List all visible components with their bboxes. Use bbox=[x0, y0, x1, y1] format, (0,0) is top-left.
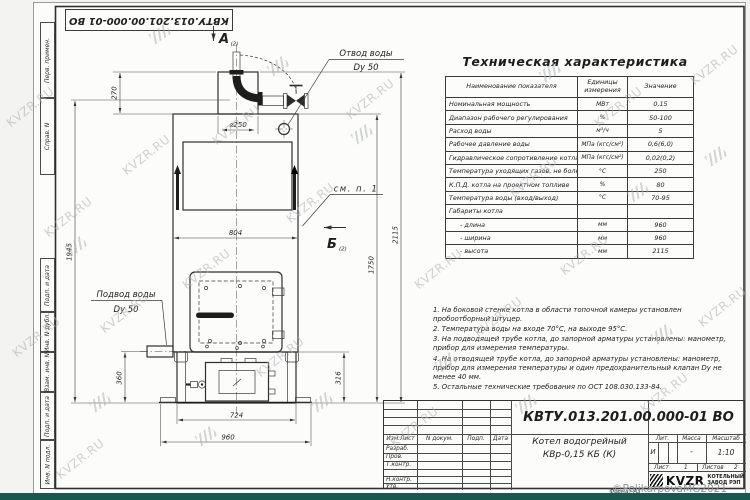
margin-cell-podp-data-1: Подп. и дата bbox=[40, 258, 55, 312]
door-handle bbox=[196, 313, 234, 319]
cell-name: Расход воды bbox=[446, 124, 578, 137]
cell-name: - длина bbox=[446, 218, 578, 231]
mass-value: - bbox=[677, 448, 706, 456]
cell-value: 80 bbox=[628, 178, 694, 191]
cell-value: 0,02(0,2) bbox=[628, 151, 694, 164]
top-stamp: КВТУ.013.201.00.000-01 ВО bbox=[65, 9, 233, 31]
svg-text:(2): (2) bbox=[339, 247, 347, 253]
tech-header-row: Наименование показателя Единицы измерени… bbox=[446, 77, 694, 98]
dim-250: ⌀250 bbox=[229, 121, 247, 129]
cell-name: Гидравлическое сопротивление котла bbox=[446, 151, 578, 164]
table-row: К.П.Д. котла на проектном топливе%80 bbox=[446, 178, 694, 191]
cell-value: 250 bbox=[628, 164, 694, 177]
scale-header: Масштаб bbox=[706, 436, 746, 442]
cell-unit: МПа (кгс/см²) bbox=[578, 151, 628, 164]
cell-name: Габариты котла bbox=[446, 205, 578, 218]
cell-name: - ширина bbox=[446, 231, 578, 244]
elbow bbox=[237, 76, 261, 99]
col-podp: Подп. bbox=[462, 436, 490, 442]
table-row: Диапазон рабочего регулирования%50-100 bbox=[446, 111, 694, 124]
dim-270: 270 bbox=[111, 86, 119, 100]
table-row: Номинальная мощностьМВт0,15 bbox=[446, 98, 694, 111]
cell-unit: °С bbox=[578, 191, 628, 204]
svg-text:Б: Б bbox=[327, 237, 337, 252]
scale-value: 1:10 bbox=[706, 448, 746, 457]
col-name: Наименование показателя bbox=[446, 77, 578, 98]
mass-header: Масса bbox=[677, 436, 706, 442]
svg-text:см. п. 1: см. п. 1 bbox=[334, 185, 379, 195]
cell-value bbox=[628, 205, 694, 218]
dim-2115: 2115 bbox=[392, 226, 400, 244]
cell-unit: °С bbox=[578, 164, 628, 177]
cell-value: 50-100 bbox=[628, 111, 694, 124]
cell-name: Температура уходящих газов, не более bbox=[446, 164, 578, 177]
boiler-body bbox=[147, 52, 312, 403]
furnace-door bbox=[190, 272, 284, 352]
product-name: Котел водогрейный КВр-0,15 КБ (К) bbox=[511, 436, 648, 462]
cell-name: Температура воды (вход/выход) bbox=[446, 191, 578, 204]
cell-value: 5 bbox=[628, 124, 694, 137]
valve bbox=[284, 86, 309, 109]
cell-unit: МВт bbox=[578, 98, 628, 111]
tech-table-title: Техническая характеристика bbox=[450, 54, 700, 69]
upper-panel bbox=[183, 142, 292, 210]
tech-table: Наименование показателя Единицы измерени… bbox=[445, 76, 694, 259]
margin-cell-inv-podl: Инв. N подл. bbox=[40, 440, 55, 489]
cell-unit: % bbox=[578, 178, 628, 191]
margin-cell-inv-dubl: Инв. N дубл. bbox=[40, 312, 55, 352]
note-5: 5. Остальные технические требования по О… bbox=[433, 383, 736, 392]
table-row: - ширинамм960 bbox=[446, 231, 694, 244]
dim-360: 360 bbox=[116, 371, 124, 385]
margin-cell-sprav-n: Справ. N bbox=[40, 98, 55, 175]
cell-unit: % bbox=[578, 111, 628, 124]
table-row: - высотамм2115 bbox=[446, 245, 694, 258]
table-row: Габариты котла bbox=[446, 205, 694, 218]
sheets-value: 2 bbox=[734, 465, 738, 471]
dim-1750: 1750 bbox=[368, 256, 376, 274]
cell-name: - высота bbox=[446, 245, 578, 258]
see-note-label: см. п. 1 bbox=[303, 185, 384, 227]
bottom-edge-bar bbox=[0, 493, 750, 500]
cell-unit: мм bbox=[578, 218, 628, 231]
inlet-label: Подвод воды Dy 50 bbox=[91, 290, 167, 345]
sheet-value: 1 bbox=[684, 465, 688, 471]
title-block: Изм.Лист N докум. Подп. Дата Разраб. Про… bbox=[383, 400, 745, 489]
doc-number: КВТУ.013.201.00.000-01 ВО bbox=[511, 401, 746, 434]
svg-text:(2): (2) bbox=[231, 42, 239, 48]
cell-name: Рабочее давление воды bbox=[446, 138, 578, 151]
col-n-dokum: N докум. bbox=[417, 436, 462, 442]
col-unit: Единицы измерения bbox=[578, 77, 628, 98]
lit-value: И bbox=[648, 448, 658, 456]
row-prov: Пров. bbox=[386, 454, 403, 460]
view-arrow-b: Б (2) bbox=[324, 228, 347, 253]
cell-unit: мм bbox=[578, 231, 628, 244]
svg-text:Отвод воды: Отвод воды bbox=[339, 49, 393, 59]
outlet-pipe bbox=[263, 96, 284, 106]
note-3: 3. На подводящей трубе котла, до запорно… bbox=[433, 335, 736, 353]
cell-unit: МПа (кгс/см²) bbox=[578, 138, 628, 151]
row-tkontr: Т.контр. bbox=[386, 462, 411, 468]
cell-name: К.П.Д. котла на проектном топливе bbox=[446, 178, 578, 191]
cell-value: 0,15 bbox=[628, 98, 694, 111]
svg-text:Dy 50: Dy 50 bbox=[113, 305, 138, 315]
ash-door bbox=[206, 363, 269, 402]
note-1: 1. На боковой стенке котла в области топ… bbox=[433, 306, 736, 324]
margin-cell-vzam-inv: Взам. инв. N bbox=[40, 352, 55, 392]
lifting-lugs bbox=[174, 165, 298, 210]
row-utv: Утв. bbox=[386, 484, 398, 490]
dim-804: 804 bbox=[229, 229, 242, 237]
svg-text:Dy 50: Dy 50 bbox=[353, 63, 378, 73]
sheets-label: Листов bbox=[702, 465, 724, 471]
cell-value: 960 bbox=[628, 218, 694, 231]
margin-cell-podp-data-2: Подп. и дата bbox=[40, 392, 55, 440]
cell-name: Диапазон рабочего регулирования bbox=[446, 111, 578, 124]
dim-316: 316 bbox=[335, 371, 343, 385]
note-2: 2. Температура воды на входе 70°С, на вы… bbox=[433, 325, 736, 334]
drawing-sheet-screenshot: 270 1945 2115 1750 360 316 804 ⌀250 724 … bbox=[0, 0, 750, 500]
lit-header: Лит. bbox=[648, 436, 677, 442]
table-row: - длинамм960 bbox=[446, 218, 694, 231]
col-izm-list: Изм.Лист bbox=[384, 436, 417, 442]
cell-name: Номинальная мощность bbox=[446, 98, 578, 111]
col-data: Дата bbox=[490, 436, 511, 442]
dim-1945: 1945 bbox=[66, 243, 74, 261]
cell-unit: мм bbox=[578, 245, 628, 258]
table-row: Гидравлическое сопротивление котлаМПа (к… bbox=[446, 151, 694, 164]
table-row: Рабочее давление водыМПа (кгс/см²)0,6(6,… bbox=[446, 138, 694, 151]
cell-value: 960 bbox=[628, 231, 694, 244]
svg-text:Подвод воды: Подвод воды bbox=[96, 290, 155, 300]
svg-text:А: А bbox=[218, 32, 229, 47]
cell-value: 0,6(6,0) bbox=[628, 138, 694, 151]
table-row: Температура воды (вход/выход)°С70-95 bbox=[446, 191, 694, 204]
table-row: Температура уходящих газов, не более°С25… bbox=[446, 164, 694, 177]
base bbox=[159, 398, 312, 403]
cell-unit bbox=[578, 205, 628, 218]
note-4: 4. На отводящей трубе котла, до запорной… bbox=[433, 355, 736, 382]
col-value: Значение bbox=[628, 77, 694, 98]
cell-value: 2115 bbox=[628, 245, 694, 258]
table-row: Расход водым³/ч5 bbox=[446, 124, 694, 137]
centerlines bbox=[140, 44, 293, 414]
cell-unit: м³/ч bbox=[578, 124, 628, 137]
row-nkontr: Н.контр. bbox=[386, 477, 412, 483]
row-razrab: Разраб. bbox=[386, 446, 409, 452]
margin-cell-perv-primen: Перв. примен. bbox=[40, 22, 55, 98]
technical-notes: 1. На боковой стенке котла в области топ… bbox=[433, 306, 736, 393]
sheet-label: Лист bbox=[654, 465, 669, 471]
dim-960: 960 bbox=[221, 434, 235, 442]
dim-724: 724 bbox=[230, 412, 243, 420]
cell-value: 70-95 bbox=[628, 191, 694, 204]
